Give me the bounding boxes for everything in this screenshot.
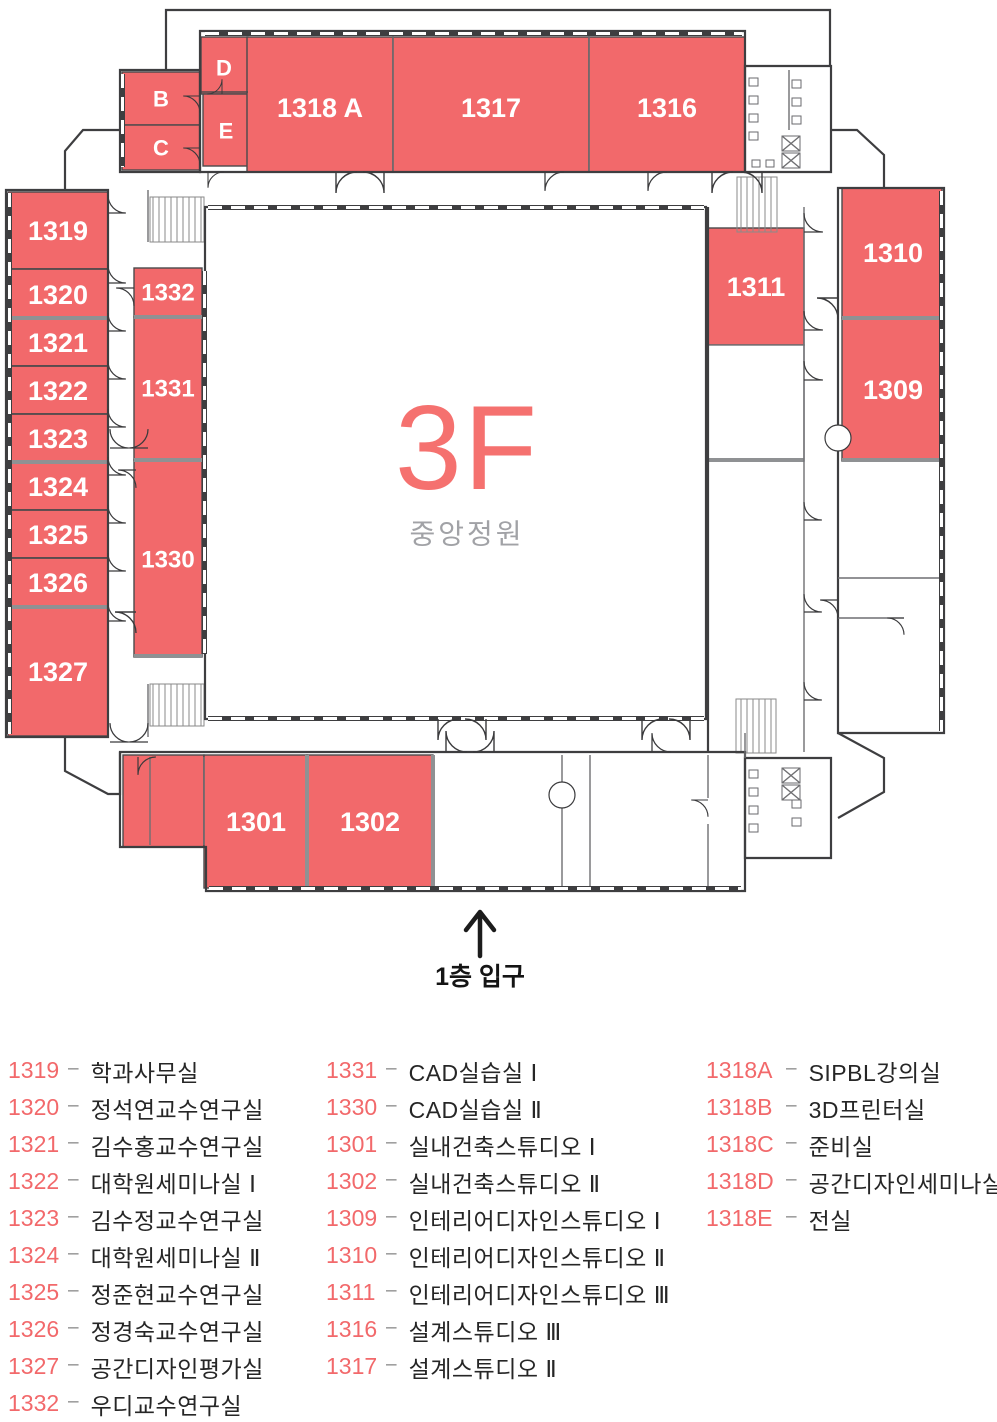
legend-name: CAD실습실 Ⅰ (409, 1054, 538, 1088)
legend-code: 1325 (8, 1279, 66, 1306)
legend-item: 1325–정준현교수연구실 (8, 1274, 264, 1311)
legend-code: 1318C (706, 1131, 784, 1158)
legend-code: 1319 (8, 1057, 66, 1084)
legend-code: 1316 (326, 1316, 384, 1343)
legend-code: 1323 (8, 1205, 66, 1232)
legend-code: 1324 (8, 1242, 66, 1269)
legend-name: 정준현교수연구실 (91, 1276, 264, 1310)
legend-separator: – (68, 1206, 79, 1228)
legend-item: 1332–우디교수연구실 (8, 1385, 264, 1422)
legend-separator: – (786, 1058, 797, 1080)
legend-item: 1318C–준비실 (706, 1126, 997, 1163)
double-door-icon (549, 782, 575, 808)
courtyard-label: 중앙정원 (409, 519, 524, 550)
entrance: 1층 입구 (435, 912, 525, 991)
entrance-arrow-icon (466, 912, 494, 956)
room-label-1323: 1323 (28, 424, 88, 454)
legend-item: 1324–대학원세미나실 Ⅱ (8, 1237, 264, 1274)
legend-code: 1320 (8, 1094, 66, 1121)
legend-separator: – (68, 1169, 79, 1191)
legend-item: 1318D–공간디자인세미나실 (706, 1163, 997, 1200)
legend-code: 1317 (326, 1353, 384, 1380)
legend-name: 인테리어디자인스튜디오 Ⅰ (409, 1202, 661, 1236)
staircase-top-left (150, 197, 204, 242)
room-label-1310: 1310 (863, 238, 923, 268)
room-label-c: C (153, 136, 169, 161)
legend-separator: – (386, 1317, 397, 1339)
legend-item: 1316–설계스튜디오 Ⅲ (326, 1311, 670, 1348)
legend-separator: – (386, 1132, 397, 1154)
legend-item: 1318E–전실 (706, 1200, 997, 1237)
legend-code: 1318B (706, 1094, 784, 1121)
legend-separator: – (68, 1391, 79, 1413)
legend-code: 1301 (326, 1131, 384, 1158)
room-label-1316: 1316 (637, 93, 697, 123)
legend-item: 1323–김수정교수연구실 (8, 1200, 264, 1237)
legend-name: 실내건축스튜디오 Ⅱ (409, 1165, 601, 1199)
double-door-icon (825, 425, 851, 451)
legend-item: 1327–공간디자인평가실 (8, 1348, 264, 1385)
elevator-icon (782, 136, 800, 168)
legend-name: 정경숙교수연구실 (91, 1313, 264, 1347)
entrance-label: 1층 입구 (435, 963, 525, 991)
legend-code: 1330 (326, 1094, 384, 1121)
legend-code: 1311 (326, 1279, 384, 1306)
legend-name: 인테리어디자인스튜디오 Ⅲ (409, 1276, 671, 1310)
room-label-1302: 1302 (340, 807, 400, 837)
room-unlabeled (123, 755, 204, 847)
legend-item: 1317–설계스튜디오 Ⅱ (326, 1348, 670, 1385)
room-label-1332: 1332 (141, 280, 194, 307)
legend-name: 준비실 (809, 1128, 874, 1162)
legend-column-3: 1318A–SIPBL강의실 1318B–3D프린터실 1318C–준비실 13… (706, 1052, 997, 1237)
legend-name: 전실 (809, 1202, 852, 1236)
legend-name: CAD실습실 Ⅱ (409, 1091, 543, 1125)
legend-separator: – (386, 1058, 397, 1080)
room-label-1311: 1311 (727, 272, 786, 302)
legend-name: 대학원세미나실 Ⅱ (91, 1239, 261, 1273)
legend-name: 정석연교수연구실 (91, 1091, 264, 1125)
room-label-1326: 1326 (28, 568, 88, 598)
legend-separator: – (68, 1317, 79, 1339)
legend-name: SIPBL강의실 (809, 1054, 942, 1088)
legend-code: 1310 (326, 1242, 384, 1269)
staircase-bottom-left (150, 684, 204, 726)
elevator-icon (782, 768, 800, 800)
room-label-1321: 1321 (28, 328, 88, 358)
legend-name: 공간디자인평가실 (91, 1350, 264, 1384)
legend-separator: – (68, 1280, 79, 1302)
legend-code: 1332 (8, 1390, 66, 1417)
room-label-1320: 1320 (28, 280, 88, 310)
legend-item: 1322–대학원세미나실 Ⅰ (8, 1163, 264, 1200)
room-white (708, 345, 804, 461)
room-label-1330: 1330 (141, 547, 194, 574)
legend-item: 1326–정경숙교수연구실 (8, 1311, 264, 1348)
legend-name: 공간디자인세미나실 (809, 1165, 997, 1199)
legend-item: 1301–실내건축스튜디오 Ⅰ (326, 1126, 670, 1163)
legend-item: 1310–인테리어디자인스튜디오 Ⅱ (326, 1237, 670, 1274)
legend-separator: – (68, 1058, 79, 1080)
legend-code: 1331 (326, 1057, 384, 1084)
legend-code: 1318A (706, 1057, 784, 1084)
legend-code: 1326 (8, 1316, 66, 1343)
legend-item: 1309–인테리어디자인스튜디오 Ⅰ (326, 1200, 670, 1237)
legend-code: 1322 (8, 1168, 66, 1195)
legend-name: 김수정교수연구실 (91, 1202, 264, 1236)
legend-separator: – (386, 1280, 397, 1302)
legend-item: 1330–CAD실습실 Ⅱ (326, 1089, 670, 1126)
legend-item: 1318A–SIPBL강의실 (706, 1052, 997, 1089)
legend-code: 1309 (326, 1205, 384, 1232)
legend: 1319–학과사무실 1320–정석연교수연구실 1321–김수홍교수연구실 1… (0, 1052, 997, 1422)
legend-separator: – (386, 1354, 397, 1376)
legend-separator: – (68, 1354, 79, 1376)
legend-column-2: 1331–CAD실습실 Ⅰ 1330–CAD실습실 Ⅱ 1301–실내건축스튜디… (326, 1052, 670, 1385)
room-label-1309: 1309 (863, 375, 923, 405)
legend-code: 1327 (8, 1353, 66, 1380)
legend-item: 1321–김수홍교수연구실 (8, 1126, 264, 1163)
legend-item: 1319–학과사무실 (8, 1052, 264, 1089)
legend-column-1: 1319–학과사무실 1320–정석연교수연구실 1321–김수홍교수연구실 1… (8, 1052, 264, 1422)
legend-name: 설계스튜디오 Ⅱ (409, 1350, 558, 1384)
legend-name: 김수홍교수연구실 (91, 1128, 264, 1162)
legend-code: 1321 (8, 1131, 66, 1158)
legend-code: 1318E (706, 1205, 784, 1232)
legend-code: 1302 (326, 1168, 384, 1195)
legend-separator: – (68, 1243, 79, 1265)
room-label-1322: 1322 (28, 376, 88, 406)
room-label-1317: 1317 (461, 93, 521, 123)
legend-separator: – (68, 1132, 79, 1154)
room-label-1301: 1301 (226, 807, 286, 837)
room-label-b: B (153, 87, 169, 112)
legend-name: 대학원세미나실 Ⅰ (91, 1165, 257, 1199)
legend-separator: – (386, 1169, 397, 1191)
legend-code: 1318D (706, 1168, 784, 1195)
room-label-e: E (219, 119, 234, 144)
room-label-1331: 1331 (141, 376, 194, 403)
floor-label: 3F (395, 381, 539, 515)
legend-name: 학과사무실 (91, 1054, 199, 1088)
room-label-1324: 1324 (28, 472, 88, 502)
floor-plan: B C D E 1318 A 1317 1316 1319 1320 1321 … (0, 0, 997, 1030)
legend-separator: – (786, 1206, 797, 1228)
room-label-1318a: 1318 A (277, 93, 363, 123)
legend-item: 1318B–3D프린터실 (706, 1089, 997, 1126)
legend-separator: – (786, 1132, 797, 1154)
legend-separator: – (386, 1243, 397, 1265)
legend-name: 설계스튜디오 Ⅲ (409, 1313, 562, 1347)
page: { "colors": { "accent": "#f2696b", "floo… (0, 0, 997, 1422)
legend-separator: – (386, 1095, 397, 1117)
legend-item: 1302–실내건축스튜디오 Ⅱ (326, 1163, 670, 1200)
legend-name: 3D프린터실 (809, 1091, 926, 1125)
room-label-d: D (216, 56, 232, 81)
room-label-1319: 1319 (28, 216, 88, 246)
legend-item: 1311–인테리어디자인스튜디오 Ⅲ (326, 1274, 670, 1311)
legend-name: 우디교수연구실 (91, 1387, 243, 1421)
room-label-1325: 1325 (28, 520, 88, 550)
legend-item: 1331–CAD실습실 Ⅰ (326, 1052, 670, 1089)
staircase-top-right (737, 177, 777, 232)
legend-separator: – (786, 1169, 797, 1191)
legend-separator: – (68, 1095, 79, 1117)
legend-name: 인테리어디자인스튜디오 Ⅱ (409, 1239, 666, 1273)
legend-separator: – (386, 1206, 397, 1228)
legend-name: 실내건축스튜디오 Ⅰ (409, 1128, 596, 1162)
legend-item: 1320–정석연교수연구실 (8, 1089, 264, 1126)
legend-separator: – (786, 1095, 797, 1117)
staircase-bottom-right (736, 699, 776, 753)
room-label-1327: 1327 (28, 657, 88, 687)
